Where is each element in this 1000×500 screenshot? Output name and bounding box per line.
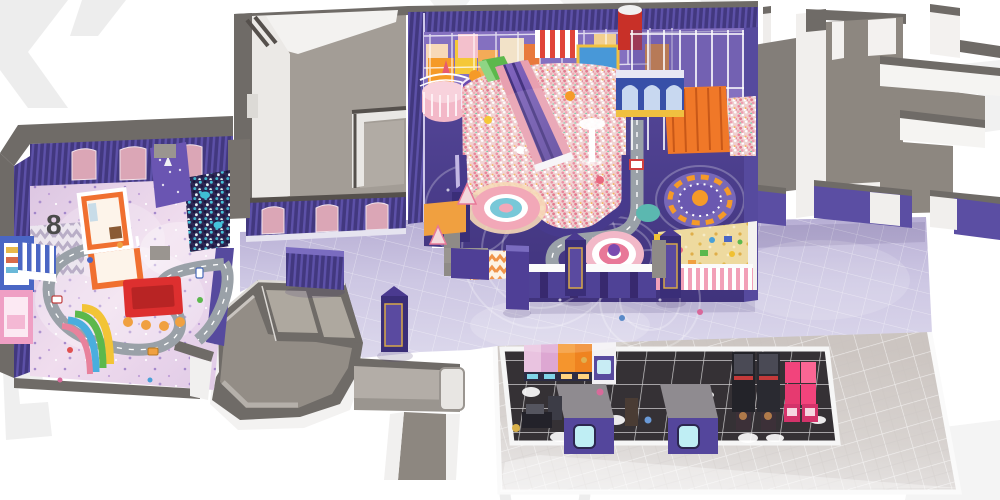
- svg-text:8: 8: [46, 209, 62, 240]
